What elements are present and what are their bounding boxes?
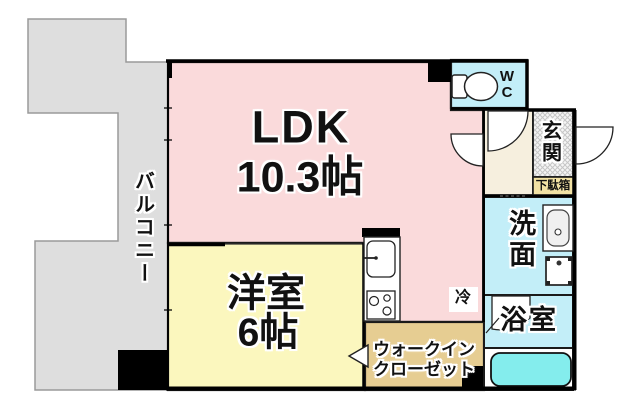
walk-in-closet-label-line2: クローゼット bbox=[373, 360, 475, 379]
refrigerator-label: 冷 bbox=[455, 291, 471, 308]
western-room-size-label: 6帖 bbox=[238, 314, 299, 355]
vanity-sink-icon bbox=[543, 205, 573, 251]
bathtub-icon bbox=[491, 353, 571, 386]
walk-in-closet-label-line1: ウォークイン bbox=[373, 340, 475, 359]
balcony-label: バルコニー bbox=[132, 171, 153, 286]
entrance-door-arc bbox=[576, 127, 613, 164]
stove-icon bbox=[367, 291, 395, 319]
washroom-label: 洗面 bbox=[506, 209, 534, 271]
floor-plan: LDK 10.3帖 洋室 6帖 バルコニー ウォークイン クローゼット 冷 洗面… bbox=[0, 0, 640, 411]
pillar-balcony bbox=[118, 350, 168, 390]
walk-in-closet-label: ウォークイン クローゼット bbox=[373, 340, 475, 380]
toilet-icon bbox=[452, 73, 498, 101]
wc-label: W C bbox=[500, 69, 514, 101]
washing-machine-icon bbox=[546, 257, 572, 285]
shoe-box-label: 下駄箱 bbox=[536, 180, 571, 192]
floor-plan-drawing bbox=[0, 0, 640, 411]
ldk-size-label: 10.3帖 bbox=[237, 155, 364, 200]
entrance-label: 玄関 bbox=[539, 120, 560, 164]
bathroom-label: 浴室 bbox=[500, 306, 558, 334]
wc-label-line1: W bbox=[500, 68, 514, 85]
kitchen-wall-stub bbox=[362, 228, 400, 237]
western-room-label: 洋室 bbox=[227, 275, 305, 316]
ldk-label: LDK bbox=[252, 103, 350, 150]
wc-label-line2: C bbox=[502, 84, 513, 101]
pillar-top bbox=[428, 62, 451, 82]
wall-stub-topleft bbox=[168, 62, 172, 78]
